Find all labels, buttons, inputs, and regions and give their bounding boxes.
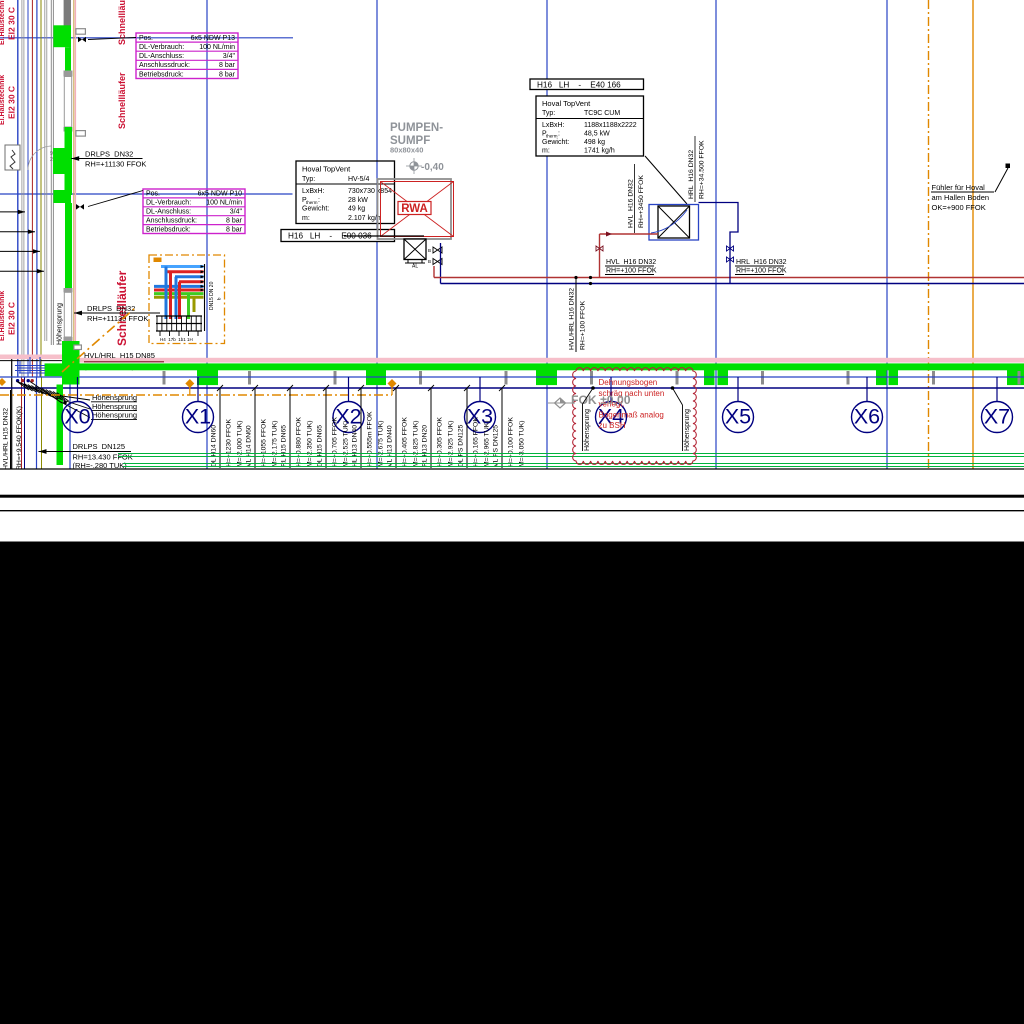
- svg-text:RH=+100 FFOK: RH=+100 FFOK: [606, 268, 657, 275]
- svg-text:H=+1230 FFOK: H=+1230 FFOK: [226, 419, 233, 467]
- svg-text:Höhensprung: Höhensprung: [57, 303, 64, 345]
- svg-text:M=-2.175 TUK): M=-2.175 TUK): [272, 420, 279, 467]
- svg-text:49 kg: 49 kg: [348, 206, 365, 213]
- svg-text:m:: m:: [542, 148, 550, 155]
- svg-text:HVL H16 DN32: HVL H16 DN32: [628, 179, 635, 228]
- svg-text:RH=+100 FFOK: RH=+100 FFOK: [580, 300, 587, 350]
- svg-text:OK=+900 FFOK: OK=+900 FFOK: [932, 203, 986, 212]
- svg-text:Pos.: Pos.: [146, 191, 160, 198]
- svg-text:am Hallen Boden: am Hallen Boden: [932, 193, 990, 202]
- svg-text:Höhensprung: Höhensprung: [92, 402, 137, 411]
- svg-text:Fühler für Hoval: Fühler für Hoval: [932, 183, 986, 192]
- svg-text:Höhensprung: Höhensprung: [684, 409, 691, 451]
- svg-text:EI2 30 C: EI2 30 C: [7, 86, 17, 119]
- svg-text:El.Haustechnik: El.Haustechnik: [0, 291, 6, 341]
- svg-text:498 kg: 498 kg: [584, 139, 605, 146]
- svg-text:HVL/HRL H15 DN32: HVL/HRL H15 DN32: [3, 408, 10, 470]
- svg-text:Schnellläufer: Schnellläufer: [117, 72, 127, 129]
- svg-text:1188x1188x2222: 1188x1188x2222: [584, 122, 637, 129]
- svg-text:Gewicht:: Gewicht:: [542, 139, 569, 146]
- svg-text:80x80x40: 80x80x40: [390, 146, 423, 155]
- svg-text:RH=+34.500 FFOK: RH=+34.500 FFOK: [699, 140, 706, 199]
- svg-text:TC9C CUM: TC9C CUM: [584, 110, 620, 117]
- svg-text:RH=+11130 FFOK: RH=+11130 FFOK: [85, 160, 146, 169]
- svg-text:Gewicht:: Gewicht:: [302, 206, 329, 213]
- svg-text:X1: X1: [185, 405, 211, 429]
- svg-text:RH=+9.540 FFOK(K): RH=+9.540 FFOK(K): [16, 406, 23, 470]
- svg-text:28 kW: 28 kW: [348, 197, 368, 204]
- svg-text:DL-Verbrauch:: DL-Verbrauch:: [139, 44, 184, 51]
- svg-text:PUMPEN-: PUMPEN-: [390, 122, 443, 134]
- svg-text:H=+0.405 FFOK: H=+0.405 FFOK: [402, 417, 409, 467]
- svg-text:X0: X0: [64, 405, 90, 429]
- svg-text:M=-3.050 TUK): M=-3.050 TUK): [519, 420, 526, 467]
- svg-text:M=-2.350 TUK): M=-2.350 TUK): [307, 420, 314, 467]
- svg-text:Typ:: Typ:: [302, 176, 315, 183]
- svg-text:HRL H16 DN32: HRL H16 DN32: [736, 259, 787, 266]
- svg-text:El.Haustechnik: El.Haustechnik: [0, 0, 6, 45]
- svg-text:Betriebsdruck:: Betriebsdruck:: [139, 71, 184, 78]
- svg-text:M=-2.825 TUK): M=-2.825 TUK): [413, 420, 420, 467]
- svg-text:H=+0.165 FFOK: H=+0.165 FFOK: [473, 417, 480, 467]
- svg-text:RH=+3450 FFOK: RH=+3450 FFOK: [638, 175, 645, 228]
- svg-text:2.107 kg/h: 2.107 kg/h: [348, 215, 381, 222]
- svg-text:H=+0.305 FFOK: H=+0.305 FFOK: [437, 417, 444, 467]
- svg-text:DL-Anschluss:: DL-Anschluss:: [146, 209, 191, 216]
- svg-text:therm: therm: [306, 200, 318, 205]
- svg-text:1741 kg/h: 1741 kg/h: [584, 148, 615, 155]
- svg-text:VL H13 DN40: VL H13 DN40: [387, 425, 394, 467]
- svg-text:HRL H16 DN32: HRL H16 DN32: [688, 150, 695, 199]
- svg-text:M=-2.965 TUK): M=-2.965 TUK): [484, 420, 491, 467]
- svg-text:DL H15 DN65: DL H15 DN65: [317, 425, 324, 467]
- svg-text:DRLPS DN32: DRLPS DN32: [85, 150, 133, 159]
- svg-text:B: B: [428, 259, 431, 264]
- svg-text:H=+0.880 FFOK: H=+0.880 FFOK: [296, 417, 303, 467]
- svg-text:EI2 30 C: EI2 30 C: [7, 302, 17, 335]
- svg-text:H16 LH - E40 166: H16 LH - E40 166: [537, 81, 621, 90]
- svg-text:Dehnungsbogen: Dehnungsbogen: [599, 378, 658, 387]
- svg-text:RH=+100 FFOK: RH=+100 FFOK: [736, 268, 787, 275]
- svg-text:8 bar: 8 bar: [226, 217, 243, 224]
- svg-text:H4 17b 1b1 1H: H4 17b 1b1 1H: [160, 337, 193, 342]
- svg-text:VL PS DN125: VL PS DN125: [493, 425, 500, 467]
- svg-text:H=+0.555m FFOK: H=+0.555m FFOK: [367, 411, 374, 467]
- svg-text:RWA: RWA: [401, 203, 428, 215]
- svg-text:LxBxH:: LxBxH:: [542, 122, 565, 129]
- svg-text:100 NL/min: 100 NL/min: [206, 200, 242, 207]
- svg-text:LxBxH:: LxBxH:: [302, 188, 325, 195]
- svg-text:HVL/HRL H16 DN32: HVL/HRL H16 DN32: [569, 288, 576, 350]
- svg-text:100 NL/min: 100 NL/min: [199, 44, 235, 51]
- svg-text::: :: [558, 131, 560, 138]
- svg-text:H=+0.705 FFOK: H=+0.705 FFOK: [332, 417, 339, 467]
- svg-text:DRLPS DN32: DRLPS DN32: [87, 304, 135, 313]
- svg-text:M=-2.000 TUK): M=-2.000 TUK): [237, 420, 244, 467]
- svg-text:8 bar: 8 bar: [219, 62, 236, 69]
- svg-text:3/4": 3/4": [223, 53, 236, 60]
- svg-text:Pos.: Pos.: [139, 35, 153, 42]
- svg-text:730x730 x854: 730x730 x854: [348, 188, 392, 195]
- svg-text:Anschlussdruck:: Anschlussdruck:: [146, 217, 197, 224]
- svg-text:DL PS DN125: DL PS DN125: [458, 424, 465, 467]
- svg-text:RL H13 DN20: RL H13 DN20: [422, 425, 429, 467]
- svg-text:HV-5/4: HV-5/4: [348, 176, 370, 183]
- svg-text:HVL H16 DN32: HVL H16 DN32: [606, 259, 656, 266]
- svg-text:-0,40: -0,40: [421, 162, 444, 173]
- svg-text:X5: X5: [725, 405, 751, 429]
- svg-text:X6: X6: [854, 405, 880, 429]
- svg-text:RL H15 DN65: RL H15 DN65: [281, 425, 288, 467]
- svg-text:6x5 NDW P10: 6x5 NDW P10: [198, 191, 242, 198]
- svg-text:zu BSH: zu BSH: [599, 421, 626, 430]
- svg-text:H=+1055 FFOK: H=+1055 FFOK: [261, 419, 268, 467]
- svg-text:El.Haustechnik: El.Haustechnik: [0, 75, 6, 125]
- svg-text:Hoval TopVent: Hoval TopVent: [302, 165, 351, 174]
- svg-text::: :: [318, 197, 320, 204]
- svg-text:DL-Verbrauch:: DL-Verbrauch:: [146, 200, 191, 207]
- svg-text:HVL/HRL H15 DN85: HVL/HRL H15 DN85: [84, 351, 155, 360]
- svg-text:DL-Anschluss:: DL-Anschluss:: [139, 53, 184, 60]
- svg-text:48,5 kW: 48,5 kW: [584, 131, 610, 138]
- svg-text:M=-2.525 TUK): M=-2.525 TUK): [343, 420, 350, 467]
- svg-text:VL H14 DN60: VL H14 DN60: [246, 425, 253, 467]
- svg-text:DL H14 DN60: DL H14 DN60: [211, 425, 218, 467]
- svg-text:H=+0.100 FFOK: H=+0.100 FFOK: [508, 417, 515, 467]
- svg-text:Typ:: Typ:: [542, 110, 555, 117]
- svg-text:Betriebsdruck:: Betriebsdruck:: [146, 226, 191, 233]
- svg-text:M=-2.925 TUK): M=-2.925 TUK): [448, 420, 455, 467]
- svg-text:6x5 NDW P13: 6x5 NDW P13: [191, 35, 235, 42]
- svg-text:RH=+11130 FFOK: RH=+11130 FFOK: [87, 314, 148, 323]
- svg-text:Anschlussdruck:: Anschlussdruck:: [139, 62, 190, 69]
- svg-text:8 bar: 8 bar: [226, 226, 243, 233]
- svg-text:AL: AL: [412, 264, 418, 270]
- svg-text:M=-2.675 TUK): M=-2.675 TUK): [378, 420, 385, 467]
- svg-text:therm: therm: [546, 134, 558, 139]
- svg-text:Bogenmaß analog: Bogenmaß analog: [599, 410, 664, 419]
- svg-text:Höhensprung: Höhensprung: [584, 409, 591, 451]
- svg-text:m:: m:: [302, 215, 310, 222]
- svg-text:B: B: [428, 248, 431, 253]
- svg-text:Höhensprung: Höhensprung: [92, 411, 137, 420]
- svg-text:DRLPS DN125: DRLPS DN125: [73, 442, 126, 451]
- svg-text:HL H13 DN40: HL H13 DN40: [352, 425, 359, 467]
- svg-text:EI2 30 C: EI2 30 C: [7, 7, 17, 40]
- svg-text:FOK ±0,00: FOK ±0,00: [571, 393, 631, 407]
- svg-text:Hoval TopVent: Hoval TopVent: [542, 99, 591, 108]
- svg-text:8 bar: 8 bar: [219, 71, 236, 78]
- svg-text:3/4": 3/4": [230, 209, 243, 216]
- svg-text:X7: X7: [984, 405, 1010, 429]
- svg-text:DN15 DN 20: DN15 DN 20: [209, 281, 215, 310]
